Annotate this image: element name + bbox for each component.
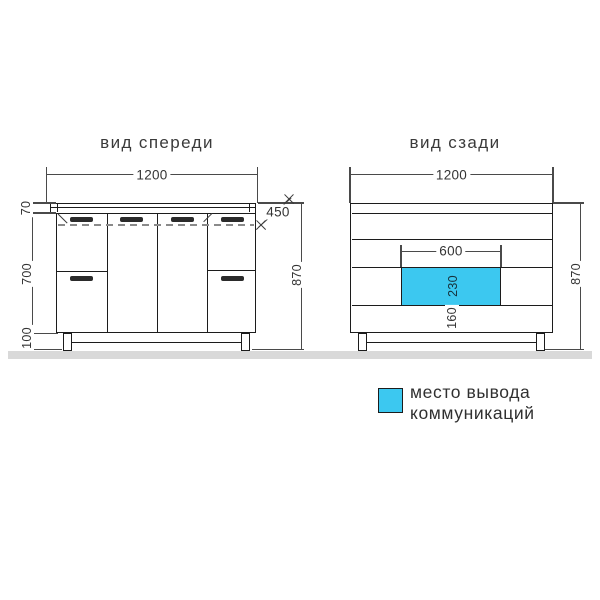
drawer-handle bbox=[221, 217, 244, 222]
drawer-divider-right bbox=[208, 270, 256, 271]
plinth-line-back bbox=[366, 342, 536, 343]
back-panel-line bbox=[352, 213, 552, 214]
door-divider bbox=[107, 214, 108, 332]
legend-label-line1: место вывода bbox=[410, 382, 535, 403]
countertop-endcap-left bbox=[57, 204, 58, 213]
dim-label-bottom-offset: 160 bbox=[445, 305, 459, 331]
cabinet-leg bbox=[536, 333, 545, 351]
dim-ext-front-width-left bbox=[46, 167, 47, 203]
cabinet-leg bbox=[241, 333, 250, 351]
sink-outline-dashed bbox=[58, 224, 254, 226]
drawer-handle bbox=[70, 276, 93, 281]
front-view-title: вид спереди bbox=[100, 133, 214, 153]
drawer-divider-left bbox=[57, 271, 107, 272]
dim-label-cutout-height: 230 bbox=[446, 273, 460, 299]
dim-ext-back-870-top bbox=[553, 202, 584, 203]
dim-label-back-total-height: 870 bbox=[569, 261, 583, 287]
drawer-handle bbox=[221, 276, 244, 281]
dim-ext-front-width-right bbox=[257, 167, 258, 203]
dim-label-front-width: 1200 bbox=[133, 168, 170, 183]
floor-strip bbox=[8, 351, 592, 359]
back-view-title: вид сзади bbox=[410, 133, 501, 153]
dim-ext-front-870-top bbox=[258, 202, 304, 203]
door-divider bbox=[157, 214, 158, 332]
door-handle bbox=[120, 217, 143, 222]
door-handle bbox=[171, 217, 194, 222]
countertop-endcap-right bbox=[249, 204, 250, 213]
dim-label-countertop-height: 70 bbox=[19, 199, 33, 218]
legend-label-line2: коммуникаций bbox=[410, 403, 535, 424]
dim-label-back-width: 1200 bbox=[433, 168, 470, 183]
plinth-line-front bbox=[71, 342, 241, 343]
dim-tick-x bbox=[255, 219, 268, 232]
dim-label-body-height: 700 bbox=[20, 261, 34, 287]
dim-label-front-total-height: 870 bbox=[290, 262, 304, 288]
dim-ext-600-right bbox=[500, 245, 501, 267]
countertop bbox=[50, 203, 256, 214]
dim-label-legs-height: 100 bbox=[20, 325, 34, 351]
back-panel-line bbox=[352, 239, 552, 240]
dim-ext-back-870-bottom bbox=[545, 349, 584, 350]
legend-label: место вывода коммуникаций bbox=[410, 382, 535, 423]
dim-ext-back-width-left bbox=[349, 167, 350, 203]
dim-ext-600-left bbox=[400, 245, 401, 267]
dim-ext-back-width-right bbox=[552, 167, 553, 203]
drawer-handle bbox=[70, 217, 93, 222]
dim-label-depth: 450 bbox=[265, 205, 290, 220]
countertop-edge-line bbox=[51, 207, 255, 208]
legend-swatch bbox=[378, 388, 403, 413]
dim-label-cutout-width: 600 bbox=[436, 244, 465, 259]
dim-ext-front-870-bottom bbox=[252, 349, 304, 350]
technical-drawing: вид спереди 1200 70 700 100 870 450 ви bbox=[0, 0, 600, 600]
door-divider bbox=[207, 214, 208, 332]
